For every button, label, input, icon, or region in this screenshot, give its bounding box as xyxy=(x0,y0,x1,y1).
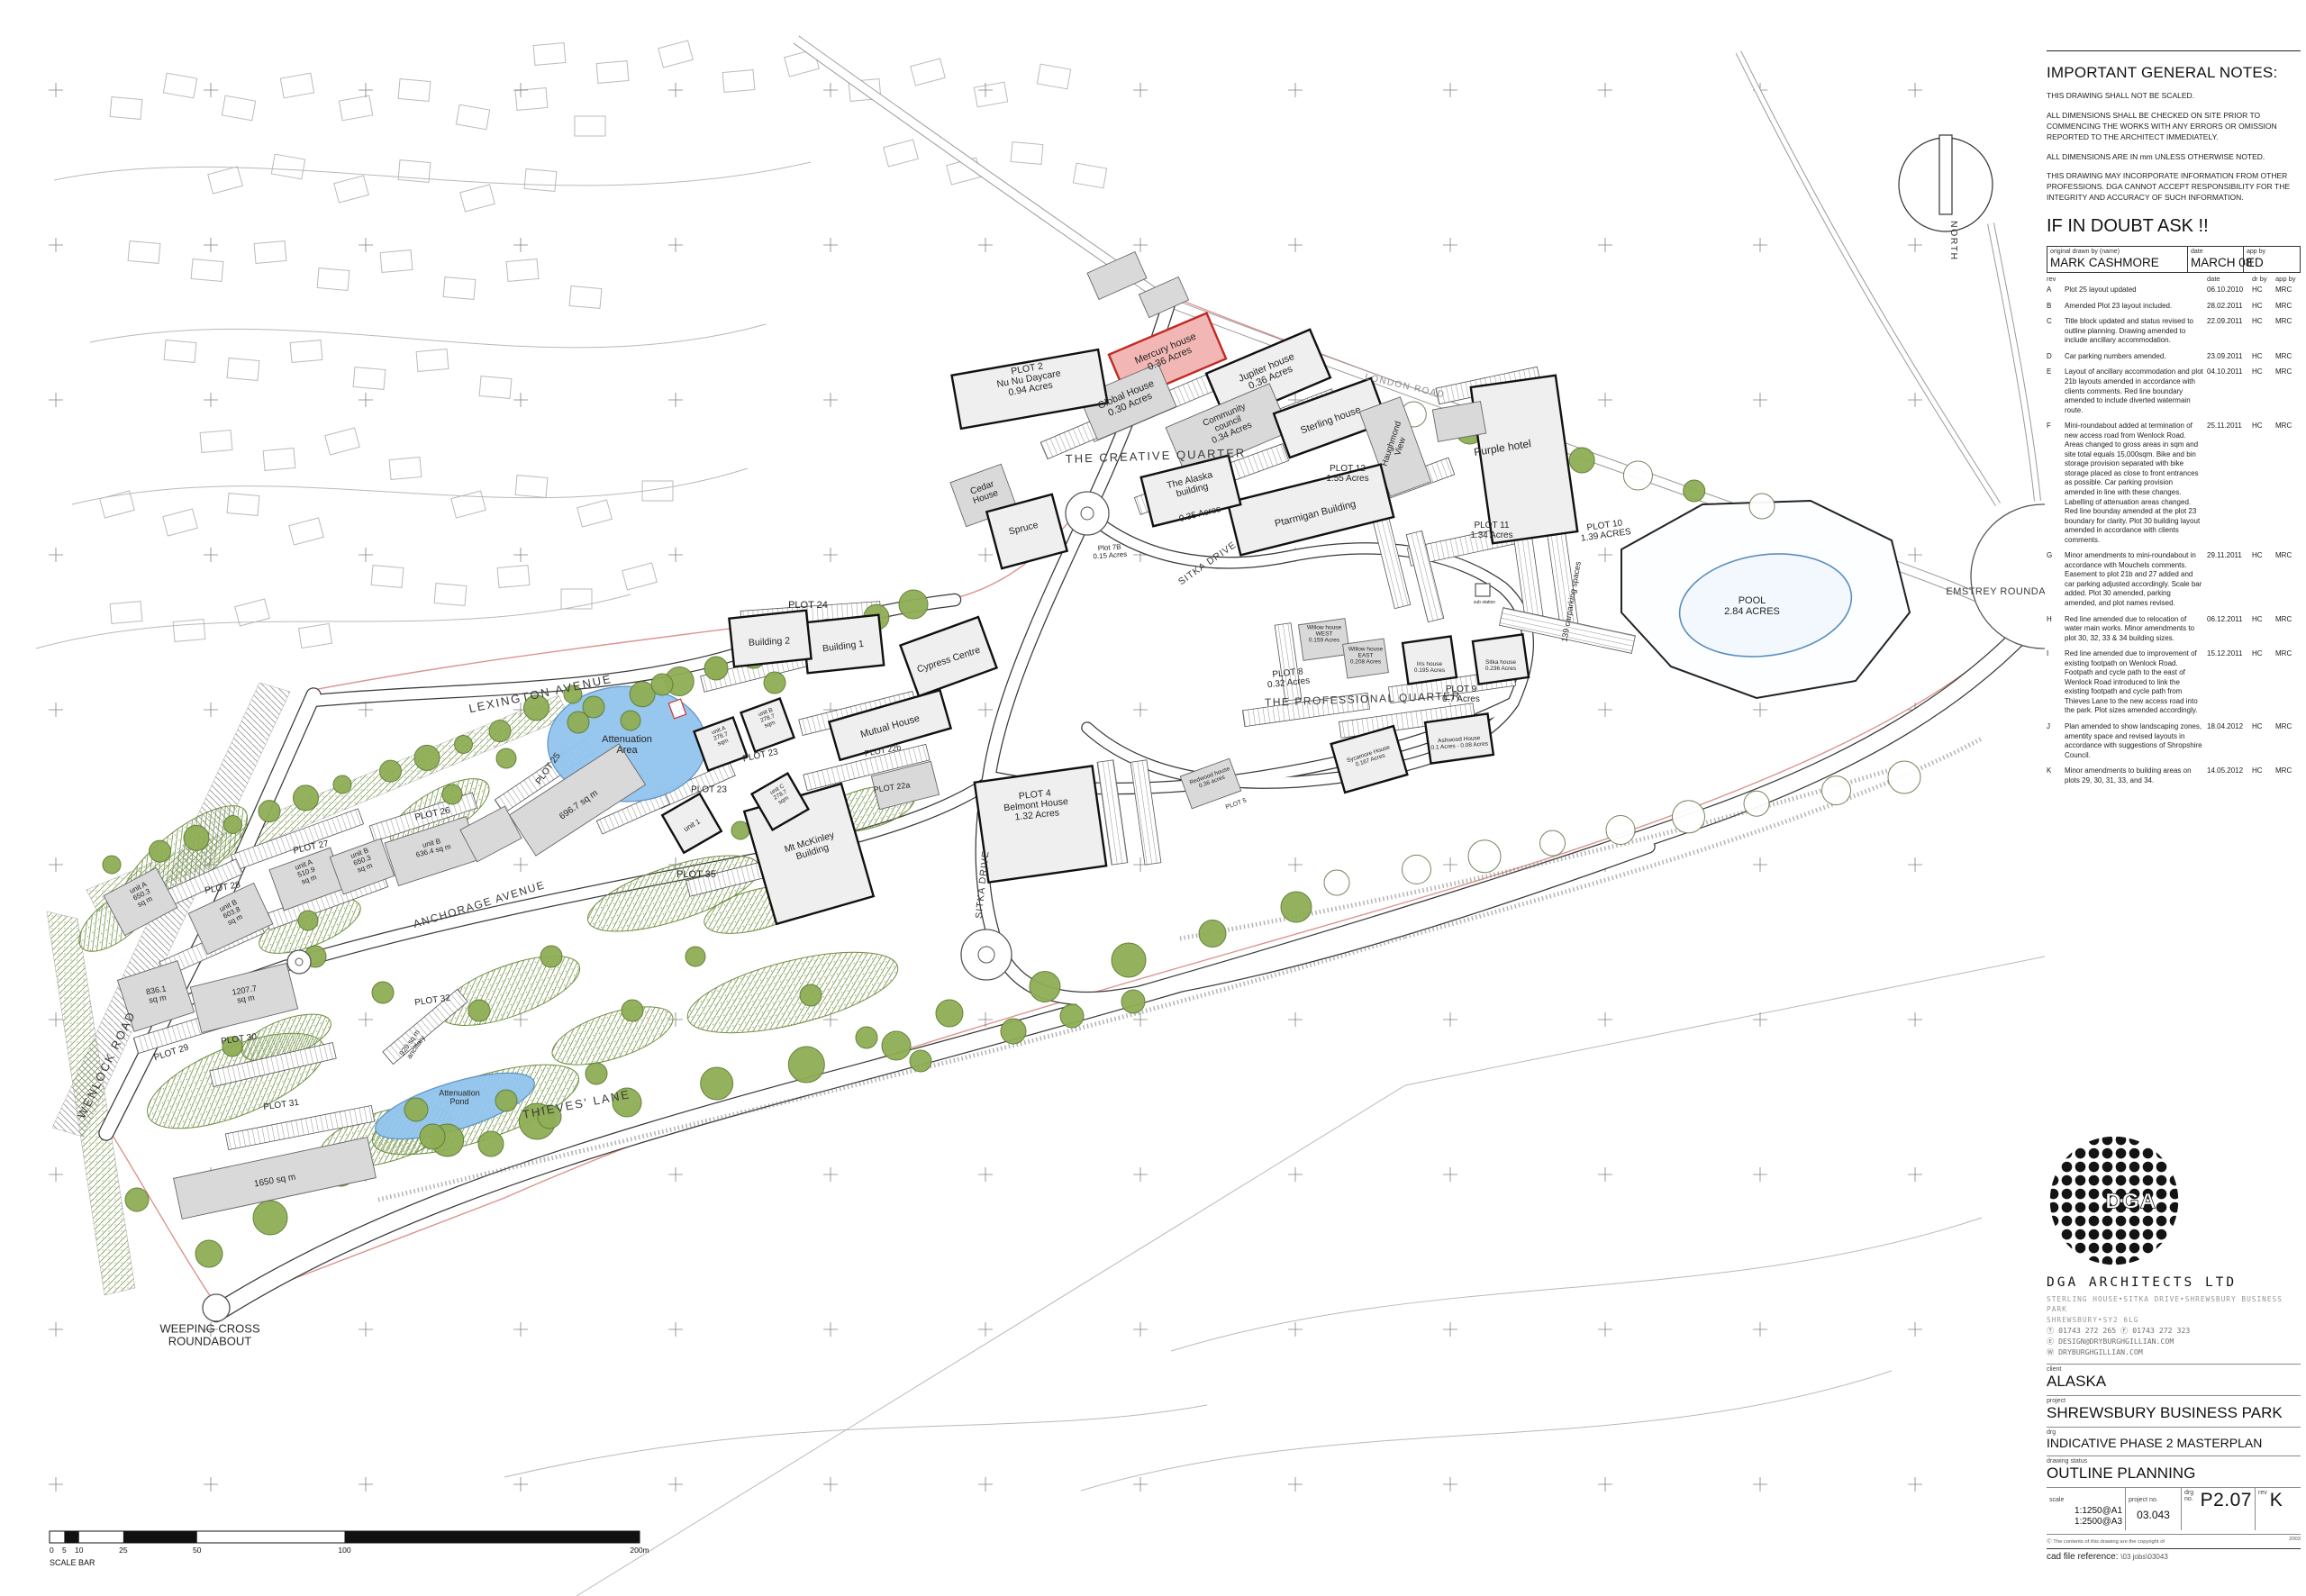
tree xyxy=(856,1027,877,1048)
context-line xyxy=(72,468,748,504)
scale-label: scale xyxy=(2049,1497,2064,1503)
sub-station xyxy=(1475,584,1490,596)
building xyxy=(1471,376,1577,544)
tree xyxy=(701,1067,733,1100)
context-line xyxy=(1081,1371,1892,1491)
context-house xyxy=(110,602,142,624)
revision-dr: HC xyxy=(2252,551,2272,608)
approved-by-label: app by xyxy=(2247,249,2297,255)
tree xyxy=(788,1047,824,1083)
context-house xyxy=(1073,163,1106,188)
context-house xyxy=(479,376,512,399)
project-no-label: project no. xyxy=(2129,1497,2158,1503)
scale-row: scale 1:1250@A1 1:2500@A3 project no. 03… xyxy=(2047,1487,2301,1530)
context-house xyxy=(515,476,548,498)
roundabout xyxy=(1066,492,1109,535)
approved-by: ED xyxy=(2247,256,2297,269)
map-label: sub station xyxy=(1474,600,1495,605)
revision-desc: Plot 25 layout updated xyxy=(2065,286,2203,295)
col-dr-by: dr by xyxy=(2252,275,2272,283)
tree xyxy=(184,825,209,850)
revision-desc: Red line amended due to relocation of wa… xyxy=(2065,615,2203,644)
revision-dr: HC xyxy=(2252,286,2272,295)
scale-bar-tick-label: 10 xyxy=(75,1546,84,1555)
tree xyxy=(294,785,319,811)
context-house xyxy=(227,494,259,516)
scale-bar: 05102550100200mSCALE BAR xyxy=(50,1531,649,1567)
project-name: SHREWSBURY BUSINESS PARK xyxy=(2047,1404,2301,1421)
tree xyxy=(372,982,394,1003)
tree xyxy=(478,1131,504,1156)
revision-row: GMinor amendments to mini-roundabout in … xyxy=(2047,551,2301,608)
map-label: Sitka house0.236 Acres xyxy=(1485,659,1517,672)
context-house xyxy=(515,88,548,111)
revision-desc: Red line amended due to improvement of e… xyxy=(2065,649,2203,716)
context-house xyxy=(380,250,413,273)
revision-rev: I xyxy=(2047,649,2061,716)
scale-bar-tick-label: 50 xyxy=(193,1546,202,1555)
revision-row: KMinor amendments to building areas on p… xyxy=(2047,766,2301,785)
scale-bar-tick-label: 5 xyxy=(62,1546,67,1555)
context-house xyxy=(191,259,223,282)
note-paragraph: ALL DIMENSIONS ARE IN mm UNLESS OTHERWIS… xyxy=(2047,152,2301,163)
firm-name: DGA ARCHITECTS LTD xyxy=(2047,1275,2301,1290)
context-house xyxy=(561,589,592,609)
tree xyxy=(731,821,749,839)
scale-bar-tick-label: 0 xyxy=(50,1546,54,1555)
rev-label: rev xyxy=(2258,1490,2267,1528)
tree xyxy=(1112,943,1146,977)
tree xyxy=(800,984,822,1006)
rev-value: K xyxy=(2270,1490,2283,1528)
context-house xyxy=(389,458,422,480)
tree xyxy=(333,775,351,793)
scale-bar-title: SCALE BAR xyxy=(50,1558,95,1567)
dga-logo-text: DGA xyxy=(2105,1189,2156,1213)
drawn-by-block: original drawn by (name) MARK CASHMORE d… xyxy=(2047,246,2301,273)
revision-date: 29.11.2011 xyxy=(2207,551,2248,608)
dga-logo-icon: DGA xyxy=(2047,1133,2182,1268)
revision-app: MRC xyxy=(2275,422,2301,545)
revision-app: MRC xyxy=(2275,551,2301,608)
context-house xyxy=(339,95,372,121)
context-house xyxy=(290,340,322,363)
client-name: ALASKA xyxy=(2047,1373,2301,1390)
status-value: OUTLINE PLANNING xyxy=(2047,1465,2301,1482)
tree xyxy=(224,816,242,834)
map-label: PLOT 90.7 Acres xyxy=(1442,685,1480,704)
context-house xyxy=(1011,142,1043,165)
context-house xyxy=(577,500,613,527)
project-no: 03.043 xyxy=(2129,1509,2178,1521)
context-house xyxy=(254,241,286,264)
col-app-by: app by xyxy=(2275,275,2301,283)
revision-desc: Mini-roundabout added at termination of … xyxy=(2065,422,2203,545)
revision-app: MRC xyxy=(2275,352,2301,362)
tree xyxy=(1540,830,1566,856)
landscape-area xyxy=(546,995,680,1077)
scale-bar-segment xyxy=(64,1531,78,1543)
tree xyxy=(298,911,318,930)
tree xyxy=(1569,448,1594,473)
tree xyxy=(1199,920,1226,948)
copyright-year: 2003 xyxy=(2289,1537,2301,1545)
revision-app: MRC xyxy=(2275,615,2301,644)
tree xyxy=(495,1090,517,1111)
context-house xyxy=(398,79,431,102)
title-block: DGA DGA ARCHITECTS LTD STERLING HOUSE•SI… xyxy=(2047,1133,2301,1562)
context-house xyxy=(533,43,566,66)
context-house xyxy=(110,97,142,120)
revision-app: MRC xyxy=(2275,367,2301,415)
map-label: EMSTREY ROUNDABOUT xyxy=(1946,586,2045,597)
scale-bar-tick-label: 25 xyxy=(119,1546,128,1555)
revision-dr: HC xyxy=(2252,722,2272,760)
revision-row: APlot 25 layout updated06.10.2010HCMRC xyxy=(2047,286,2301,295)
revision-row: CTitle block updated and status revised … xyxy=(2047,317,2301,346)
context-house xyxy=(334,176,369,203)
revision-date: 15.12.2011 xyxy=(2207,649,2248,716)
context-house xyxy=(289,518,324,545)
context-house xyxy=(434,584,467,606)
context-house xyxy=(1037,64,1070,89)
copyright-row: Ⓒ The contents of this drawing are the c… xyxy=(2047,1534,2301,1545)
tree xyxy=(540,946,562,967)
revision-date: 14.05.2012 xyxy=(2207,766,2248,785)
revision-rev: E xyxy=(2047,367,2061,415)
copyright-text: Ⓒ The contents of this drawing are the c… xyxy=(2047,1537,2165,1545)
context-house xyxy=(506,259,539,282)
revision-desc: Layout of ancillary accommodation and pl… xyxy=(2065,367,2203,415)
revision-rev: J xyxy=(2047,722,2061,760)
north-needle xyxy=(1939,135,1952,214)
revision-rev: H xyxy=(2047,615,2061,644)
tree xyxy=(1324,870,1349,895)
drawn-by-name: MARK CASHMORE xyxy=(2050,256,2184,269)
context-house xyxy=(524,169,557,192)
col-rev: rev xyxy=(2047,275,2061,283)
revision-date: 22.09.2011 xyxy=(2207,317,2248,346)
revision-row: IRed line amended due to improvement of … xyxy=(2047,649,2301,716)
roundabout xyxy=(1971,504,2045,648)
revision-date: 06.10.2010 xyxy=(2207,286,2248,295)
tree xyxy=(259,801,280,822)
tree xyxy=(150,840,171,862)
map-label: PLOT 35 xyxy=(676,869,716,880)
map-label: PLOT 80.32 Acres xyxy=(1266,667,1310,691)
context-line xyxy=(504,1405,1207,1477)
revision-dr: HC xyxy=(2252,766,2272,785)
context-line xyxy=(1171,1218,1982,1351)
scale-bar-tick-label: 200m xyxy=(630,1546,649,1555)
revision-desc: Minor amendments to mini-roundabout in a… xyxy=(2065,551,2203,608)
firm-web: Ⓦ DRYBURGHGILLIAN.COM xyxy=(2047,1347,2301,1357)
revision-date: 23.09.2011 xyxy=(2207,352,2248,362)
context-house xyxy=(451,491,486,518)
context-house xyxy=(325,428,360,455)
parking-row xyxy=(1130,760,1161,865)
tree xyxy=(882,1031,911,1060)
context-house xyxy=(722,70,755,93)
context-house xyxy=(416,349,449,372)
revision-desc: Amended Plot 23 layout included. xyxy=(2065,302,2203,312)
notes-emphasis: IF IN DOUBT ASK !! xyxy=(2047,216,2301,237)
map-label: 836.1sq m xyxy=(145,984,168,1004)
tree xyxy=(195,1240,222,1267)
tree xyxy=(622,1000,643,1021)
revision-rev: D xyxy=(2047,352,2061,362)
context-house xyxy=(596,61,629,84)
context-house xyxy=(163,73,196,98)
revision-row: JPlan amended to show landscaping zones,… xyxy=(2047,722,2301,760)
context-house xyxy=(443,277,476,300)
cad-value: \03 jobs\03043 xyxy=(2120,1553,2168,1561)
revision-column-headers: rev date dr by app by xyxy=(2047,273,2301,286)
scale-bar-tick-label: 100 xyxy=(338,1546,350,1555)
revision-dr: HC xyxy=(2252,302,2272,312)
context-house xyxy=(227,358,259,381)
note-paragraph: ALL DIMENSIONS SHALL BE CHECKED ON SITE … xyxy=(2047,111,2301,143)
parking-row xyxy=(1275,623,1302,702)
map-label: PLOT 5 xyxy=(1225,797,1248,811)
scale-a1: 1:1250@A1 xyxy=(2049,1506,2122,1518)
context-house xyxy=(456,104,489,130)
tree xyxy=(1888,761,1920,793)
tree xyxy=(1606,816,1635,845)
tree xyxy=(1001,1019,1026,1044)
tree xyxy=(125,1188,149,1211)
context-house xyxy=(569,286,602,309)
firm-address-1: STERLING HOUSE•SITKA DRIVE•SHREWSBURY BU… xyxy=(2047,1294,2301,1315)
drawn-date-label: date xyxy=(2191,249,2240,255)
revision-row: HRed line amended due to relocation of w… xyxy=(2047,615,2301,644)
firm-email: Ⓔ DESIGN@DRYBURGHGILLIAN.COM xyxy=(2047,1336,2301,1347)
tree xyxy=(764,672,785,694)
tree xyxy=(586,1063,607,1084)
scale-bar-segment xyxy=(345,1531,640,1543)
tree xyxy=(651,674,673,695)
tree xyxy=(1749,494,1775,519)
tree xyxy=(1281,892,1312,922)
revision-rev: B xyxy=(2047,302,2061,312)
context-house xyxy=(353,367,386,390)
road-casing xyxy=(982,513,1648,999)
tree xyxy=(1744,791,1769,816)
tree xyxy=(404,1098,428,1121)
revision-dr: HC xyxy=(2252,367,2272,415)
context-line xyxy=(90,324,766,348)
tree xyxy=(455,736,473,754)
firm-phone: Ⓣ 01743 272 265 Ⓕ 01743 272 323 xyxy=(2047,1325,2301,1336)
cad-reference-row: cad file reference: \03 jobs\03043 xyxy=(2047,1548,2301,1562)
context-house xyxy=(100,491,135,518)
revision-date: 06.12.2011 xyxy=(2207,615,2248,644)
tree xyxy=(414,745,440,770)
tree xyxy=(704,657,728,680)
context-house xyxy=(911,59,946,86)
map-label: WEEPING CROSSROUNDABOUT xyxy=(159,1322,260,1348)
drg-label: drg xyxy=(2047,1429,2301,1436)
drawing-sheet: LEXINGTON AVENUEANCHORAGE AVENUETHIEVES'… xyxy=(0,0,2306,1596)
map-label: Plot 7B0.15 Acres xyxy=(1093,542,1128,560)
revision-dr: HC xyxy=(2252,615,2272,644)
context-house xyxy=(884,140,919,167)
site-plan-canvas: LEXINGTON AVENUEANCHORAGE AVENUETHIEVES'… xyxy=(0,0,2045,1596)
context-house xyxy=(575,116,605,136)
revision-date: 25.11.2011 xyxy=(2207,422,2248,545)
panel-divider xyxy=(2047,50,2301,51)
revision-date: 04.10.2011 xyxy=(2207,367,2248,415)
tree xyxy=(1684,480,1705,502)
revision-rev: F xyxy=(2047,422,2061,545)
drg-name: INDICATIVE PHASE 2 MASTERPLAN xyxy=(2047,1436,2301,1450)
tree xyxy=(420,1124,445,1149)
drg-no-label: drg no. xyxy=(2184,1490,2199,1528)
context-house xyxy=(974,82,1007,107)
context-house xyxy=(622,563,658,590)
revision-app: MRC xyxy=(2275,649,2301,716)
map-label: PLOT 121.55 Acres xyxy=(1326,464,1368,484)
context-house xyxy=(128,241,160,264)
tree xyxy=(1468,840,1501,873)
building xyxy=(975,766,1106,882)
revision-desc: Car parking numbers amended. xyxy=(2065,352,2203,362)
tree xyxy=(1673,801,1705,833)
building xyxy=(1087,252,1147,300)
map-label: PLOT 24 xyxy=(788,600,828,611)
dga-logo: DGA xyxy=(2047,1133,2301,1270)
context-line xyxy=(54,162,811,186)
revision-dr: HC xyxy=(2252,422,2272,545)
context-house xyxy=(317,268,350,291)
revision-app: MRC xyxy=(2275,302,2301,312)
map-label: PLOT 101.39 ACRES xyxy=(1579,517,1632,543)
context-house xyxy=(280,73,313,98)
context-house xyxy=(460,185,495,212)
tree xyxy=(468,1000,490,1021)
context-house xyxy=(658,41,694,68)
tree xyxy=(936,1000,963,1027)
revision-row: BAmended Plot 23 layout included.28.02.2… xyxy=(2047,302,2301,312)
tree xyxy=(899,590,928,619)
revision-app: MRC xyxy=(2275,286,2301,295)
north-label: NORTH xyxy=(1948,221,1959,261)
revision-row: DCar parking numbers amended.23.09.2011H… xyxy=(2047,352,2301,362)
revision-date: 28.02.2011 xyxy=(2207,302,2248,312)
tree xyxy=(496,748,516,768)
drg-no: P2.07 xyxy=(2201,1490,2252,1528)
revision-rev: K xyxy=(2047,766,2061,785)
revision-app: MRC xyxy=(2275,766,2301,785)
firm-address-2: SHREWSBURY•SY2 6LG xyxy=(2047,1315,2301,1325)
context-house xyxy=(271,154,304,179)
tree xyxy=(1623,461,1652,490)
revision-desc: Title block updated and status revised t… xyxy=(2065,317,2203,346)
tree xyxy=(1030,972,1060,1002)
tree xyxy=(1822,776,1851,805)
revision-row: FMini-roundabout added at termination of… xyxy=(2047,422,2301,545)
existing-road xyxy=(1739,52,1998,504)
tree xyxy=(1121,990,1145,1013)
road xyxy=(982,513,1648,999)
tree xyxy=(910,1050,931,1072)
tree xyxy=(489,721,511,742)
revision-date: 18.04.2012 xyxy=(2207,722,2248,760)
context-house xyxy=(173,620,205,642)
revision-dr: HC xyxy=(2252,352,2272,362)
tree xyxy=(253,1201,287,1235)
tree xyxy=(567,712,589,733)
context-house xyxy=(371,566,404,588)
drawn-date: MARCH 08 xyxy=(2191,256,2240,269)
client-label: client xyxy=(2047,1366,2301,1373)
context-house xyxy=(164,340,196,363)
project-label: project xyxy=(2047,1398,2301,1404)
context-house xyxy=(222,95,255,121)
cad-label: cad file reference: xyxy=(2047,1552,2119,1562)
map-label: PLOT 111.34 Acres xyxy=(1470,521,1512,540)
context-house xyxy=(298,623,331,648)
tree xyxy=(103,856,121,874)
revision-rev: G xyxy=(2047,551,2061,608)
revision-desc: Minor amendments to building areas on pl… xyxy=(2065,766,2203,785)
notes-title: IMPORTANT GENERAL NOTES: xyxy=(2047,64,2301,82)
scale-bar-segment xyxy=(123,1531,197,1543)
roundabout xyxy=(961,929,1012,980)
revision-app: MRC xyxy=(2275,317,2301,346)
tree xyxy=(1060,1004,1084,1028)
tree xyxy=(442,784,462,804)
title-panel: IMPORTANT GENERAL NOTES: THIS DRAWING SH… xyxy=(2047,0,2301,1596)
tree xyxy=(1403,855,1431,884)
note-paragraph: THIS DRAWING MAY INCORPORATE INFORMATION… xyxy=(2047,171,2301,204)
tree xyxy=(380,760,402,782)
tree xyxy=(685,947,705,966)
map-label: Iris house0.195 Acres xyxy=(1414,661,1446,674)
existing-road-casing xyxy=(1739,52,1998,504)
notes-paragraphs: THIS DRAWING SHALL NOT BE SCALED.ALL DIM… xyxy=(2047,91,2301,204)
revision-desc: Plan amended to show landscaping zones, … xyxy=(2065,722,2203,760)
status-label: drawing status xyxy=(2047,1458,2301,1465)
roundabout xyxy=(287,950,311,974)
north-arrow: NORTH xyxy=(1899,135,1993,261)
revision-dr: HC xyxy=(2252,317,2272,346)
revision-row: ELayout of ancillary accommodation and p… xyxy=(2047,367,2301,415)
note-paragraph: THIS DRAWING SHALL NOT BE SCALED. xyxy=(2047,91,2301,102)
context-house xyxy=(208,167,243,194)
revision-dr: HC xyxy=(2252,649,2272,716)
revision-app: MRC xyxy=(2275,722,2301,760)
tree xyxy=(621,711,640,730)
context-house xyxy=(497,566,530,588)
map-label: Building 2 xyxy=(749,635,791,648)
context-house xyxy=(200,431,232,453)
revision-rev: A xyxy=(2047,286,2061,295)
parking-row xyxy=(1373,517,1411,608)
scale-a3: 1:2500@A3 xyxy=(2049,1517,2122,1528)
context-house xyxy=(263,449,295,471)
drawn-by-label: original drawn by (name) xyxy=(2050,249,2184,255)
map-label: PLOT 23 xyxy=(691,785,727,795)
revision-table: APlot 25 layout updated06.10.2010HCMRCBA… xyxy=(2047,286,2301,785)
revision-rev: C xyxy=(2047,317,2061,346)
roundabout xyxy=(203,1294,230,1321)
col-date: date xyxy=(2207,275,2248,283)
context-house xyxy=(163,509,198,536)
